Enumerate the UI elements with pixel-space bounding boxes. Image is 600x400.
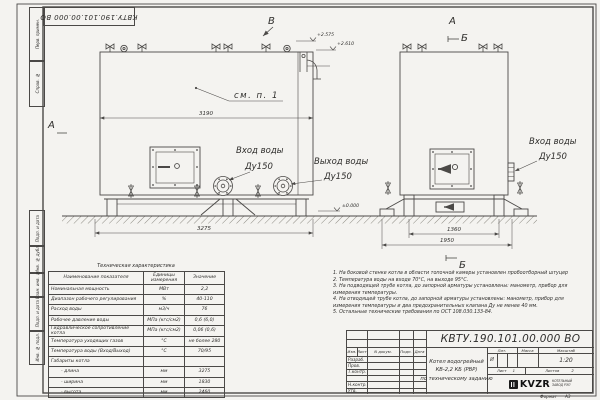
company-name: КОТЕЛЬНЫЙ ЗАВОД РЭП: [552, 380, 572, 388]
note-3: 3. На подводящей трубе котла, до запорно…: [333, 284, 592, 297]
table-row: Номинальная мощностьМВт2,2: [49, 285, 225, 295]
row-utv: Утв.: [348, 388, 367, 394]
valve-icon: [494, 44, 502, 52]
valve-icon: [138, 44, 146, 52]
table-row: Температура уходящих газов°Сне более 280: [49, 336, 225, 346]
company-cell: KVZR КОТЕЛЬНЫЙ ЗАВОД РЭП: [487, 374, 594, 394]
margin-box-vzam-inv: Взам. инв. №: [29, 272, 45, 298]
side-inlet-flange: [508, 163, 514, 181]
table-row: - высотамм2460: [49, 387, 225, 397]
elev-roof: +2.575: [317, 32, 334, 38]
kvzr-logo-text: KVZR: [520, 379, 550, 390]
table-row: Габариты котла: [49, 357, 225, 367]
valve-icon: [224, 44, 232, 52]
table-row: - длинамм3275: [49, 367, 225, 377]
col-podp: Подп.: [399, 347, 413, 356]
table-row: - ширинамм1830: [49, 377, 225, 387]
scale-value: 1:20: [538, 353, 594, 367]
note-1: 1. На боковой стенке котла в области топ…: [333, 271, 592, 278]
outlet-flange: [274, 177, 293, 196]
table-row: Расход водым3/ч76: [49, 305, 225, 315]
dim-3275: 3275: [197, 226, 211, 232]
mass-label: Масса: [517, 347, 538, 353]
drawing-sheet: { "stamp": { "doc_number": "КВТУ.190.101…: [0, 0, 600, 400]
front-inlet-label: Вход воды: [236, 146, 284, 156]
drain-valve-icon: [386, 181, 391, 195]
col-ndokum: N докум.: [367, 347, 399, 356]
company-logo: KVZR КОТЕЛЬНЫЙ ЗАВОД РЭП: [509, 379, 572, 390]
table-row: Рабочее давление водыМПа (кгс/см2)0,6 (6…: [49, 315, 225, 325]
valve-icon: [106, 44, 114, 52]
side-inlet-label: Вход воды: [529, 137, 577, 147]
side-view: [380, 44, 528, 216]
inlet-flange: [214, 177, 233, 196]
see-item-label: см. п. 1: [234, 91, 279, 101]
spec-table: Наименование показателя Единицы измерени…: [48, 271, 225, 398]
elev-zero: ±0.000: [342, 203, 359, 209]
title-block: КВТУ.190.101.00.000 ВО Изм. Лист N докум…: [346, 330, 593, 393]
table-row: Температура воды (Вход/Выход)°С70/95: [49, 347, 225, 357]
spec-header-row: Наименование показателя Единицы измерени…: [49, 272, 225, 285]
side-door: [430, 149, 474, 189]
kvzr-logo-icon: [509, 380, 518, 389]
front-outlet-label: Выход воды: [314, 157, 368, 167]
margin-box-inv-podl: Инв. № подл.: [29, 330, 45, 365]
margin-box-inv-dubl: Инв. № дубл.: [29, 245, 45, 274]
col-data: Дата: [413, 347, 426, 356]
ground-hatch: [62, 216, 537, 224]
note-5: 5. Остальные технические требования по О…: [333, 310, 592, 317]
furnace-door: [150, 147, 200, 188]
front-view: [100, 44, 330, 216]
format-label: Формат А3: [540, 394, 571, 399]
product-title: Котел водогрейный КВ-2,2 КБ (РВР) по тех…: [427, 348, 486, 393]
valve-icon: [418, 44, 426, 52]
top-stamp-box: КВТУ.190.101.00.000 ВО: [43, 7, 135, 26]
table-row: Гидравлическое сопротивление котлаМПа (к…: [49, 325, 225, 336]
sheets-cell: Листов 2: [525, 367, 594, 374]
front-outlet-dn: Ду150: [323, 172, 352, 182]
margin-box-podp-data-1: Подп. и дата: [29, 210, 45, 247]
section-b-top-label: Б: [461, 33, 468, 44]
view-b-label: В: [268, 16, 275, 27]
valve-icon: [212, 44, 220, 52]
spec-table-block: Техническая характеристика Наименование …: [48, 262, 224, 398]
top-stamp-number: КВТУ.190.101.00.000 ВО: [40, 13, 138, 21]
row-tkontr: Т.контр.: [348, 369, 367, 375]
doc-number: КВТУ.190.101.00.000 ВО: [426, 331, 594, 348]
side-inlet-dn: Ду150: [538, 152, 567, 162]
col-list: Лист: [357, 347, 367, 356]
valve-icon: [262, 44, 270, 52]
technical-notes: 1. На боковой стенке котла в области топ…: [333, 271, 592, 317]
table-row: Диапазон рабочего регулирования%40-110: [49, 295, 225, 305]
margin-box-perv-primen: Перв. примен.: [29, 7, 45, 62]
dim-1950: 1950: [440, 238, 454, 244]
section-b-bottom-label: Б: [459, 260, 466, 271]
note-4: 4. На отводящей трубе котла, до запорной…: [333, 297, 592, 310]
valve-icon: [403, 44, 411, 52]
spec-table-title: Техническая характеристика: [48, 262, 224, 271]
margin-box-podp-data-2: Подп. и дата: [29, 296, 45, 332]
dim-3190: 3190: [199, 111, 213, 117]
col-izm: Изм.: [347, 347, 357, 356]
view-a-front-label: А: [47, 120, 55, 131]
elev-pipe: +2.610: [337, 41, 354, 47]
row-nkontr: Н.контр.: [348, 381, 367, 387]
dim-1360: 1360: [447, 227, 461, 233]
view-a-side-label: А: [448, 16, 456, 27]
margin-box-sprav-n: Справ. №: [29, 60, 45, 107]
front-inlet-dn: Ду150: [244, 162, 273, 172]
row-prov: Пров.: [348, 362, 367, 368]
valve-icon: [479, 44, 487, 52]
sheet-cell: Лист 1: [487, 367, 525, 374]
lit-value: И: [487, 353, 497, 367]
drain-valve-icon: [518, 181, 523, 195]
